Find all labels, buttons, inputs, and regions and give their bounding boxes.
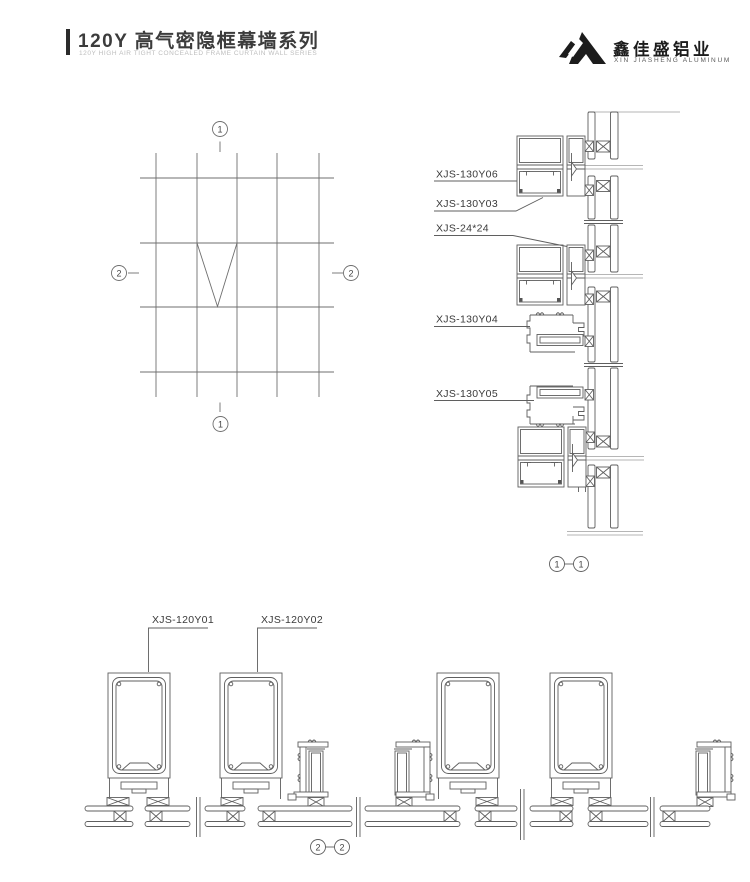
section-break-mark — [357, 797, 361, 837]
section-marker-left: 2 — [112, 266, 140, 281]
opener-top-profile — [527, 313, 594, 352]
vertical-section-detail: XJS-130Y06 XJS-130Y03 XJS-24*24 XJS-130Y… — [434, 112, 680, 572]
horizontal-section-detail: XJS-120Y01 XJS-120Y02 — [85, 614, 735, 855]
section-ref-num: 2 — [339, 842, 344, 852]
section-break-mark — [521, 789, 525, 840]
mullion-joint-top — [517, 136, 643, 196]
section-marker-bottom: 1 — [213, 403, 228, 432]
section-marker-right-num: 2 — [348, 268, 353, 278]
callout-label: XJS-130Y03 — [436, 198, 498, 210]
catalog-page: 120Y 高气密隐框幕墙系列 120Y HIGH AIR TIGHT CONCE… — [0, 0, 750, 882]
elevation-diagram: 1 1 2 2 — [112, 122, 359, 432]
mullion-profile — [220, 673, 282, 799]
section-break-mark — [584, 364, 623, 367]
section-ref-2-2: 2 2 — [311, 840, 350, 855]
callout-label: XJS-120Y01 — [152, 614, 214, 626]
callouts: XJS-120Y01 XJS-120Y02 — [149, 614, 323, 672]
section-break-mark — [197, 797, 201, 837]
opener-jamb-right — [394, 740, 434, 807]
section-marker-right: 2 — [332, 266, 359, 281]
section-break-mark — [651, 797, 655, 837]
callout-label: XJS-120Y02 — [261, 614, 323, 626]
opener-jamb-left — [288, 740, 328, 807]
callout-label: XJS-130Y04 — [436, 314, 498, 326]
glass-edge-spacers — [107, 798, 611, 806]
mullion-joint-middle — [517, 245, 643, 305]
mullion-profile — [108, 673, 170, 799]
section-marker-top: 1 — [213, 122, 228, 153]
callout-label: XJS-130Y05 — [436, 388, 498, 400]
section-ref-1-1: 1 1 — [550, 557, 589, 572]
leader-line — [258, 628, 318, 672]
mullion-profile — [550, 673, 612, 799]
opening-vent-symbol — [197, 243, 237, 307]
technical-drawing: 1 1 2 2 — [0, 0, 750, 882]
section-marker-left-num: 2 — [116, 268, 121, 278]
elevation-grid-lines — [140, 153, 334, 397]
mullion-profile — [437, 673, 499, 799]
section-break-mark — [584, 221, 623, 224]
section-ref-num: 1 — [554, 559, 559, 569]
callout-label: XJS-130Y06 — [436, 169, 498, 181]
opener-jamb-partial-right — [695, 740, 735, 807]
mullion-joint-bottom — [518, 427, 644, 487]
section-ref-num: 2 — [315, 842, 320, 852]
opener-bottom-profile — [527, 386, 594, 426]
callout-label: XJS-24*24 — [436, 223, 489, 235]
section-ref-num: 1 — [578, 559, 583, 569]
section-marker-bottom-num: 1 — [218, 419, 223, 429]
section-marker-top-num: 1 — [217, 124, 222, 134]
leader-line — [149, 628, 209, 672]
